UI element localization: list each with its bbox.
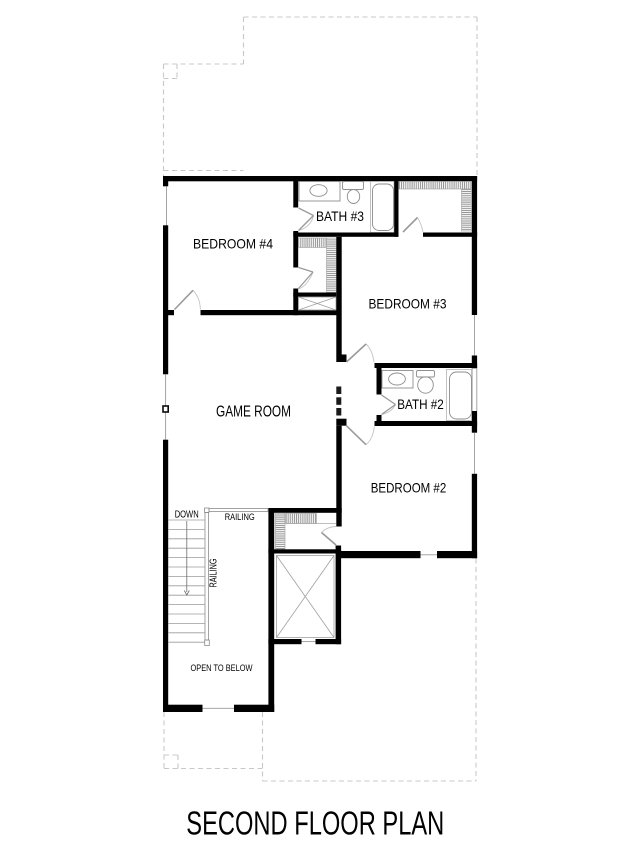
svg-text:BEDROOM #3: BEDROOM #3	[369, 296, 447, 312]
svg-text:BATH #2: BATH #2	[397, 396, 444, 412]
svg-text:BATH #3: BATH #3	[316, 208, 364, 224]
svg-text:RAILING: RAILING	[225, 512, 255, 523]
svg-text:BEDROOM #4: BEDROOM #4	[193, 236, 273, 252]
svg-text:BEDROOM #2: BEDROOM #2	[371, 480, 447, 496]
svg-text:SECOND FLOOR PLAN: SECOND FLOOR PLAN	[186, 805, 444, 842]
svg-text:RAILING: RAILING	[208, 558, 219, 587]
svg-text:GAME ROOM: GAME ROOM	[216, 404, 291, 421]
svg-text:DOWN: DOWN	[175, 510, 199, 521]
svg-text:OPEN TO BELOW: OPEN TO BELOW	[191, 663, 253, 674]
